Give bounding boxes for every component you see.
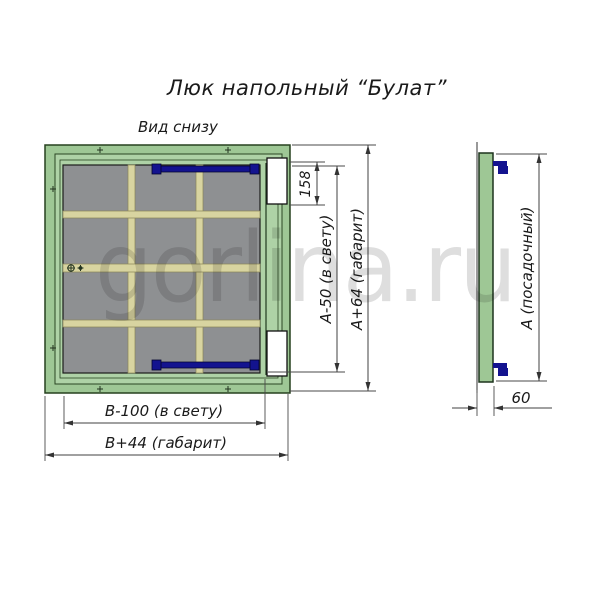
hinge-bottom-left-bracket	[152, 360, 161, 370]
hinge-bottom-bar	[158, 362, 253, 368]
dim-seat-height: А (посадочный)	[518, 207, 536, 331]
floor-hatch-drawing-page: Люк напольный “Булат” Вид снизу	[0, 0, 600, 600]
side-hinge-bottom-foot	[498, 368, 508, 376]
dim-width-clear: В-100 (в свету)	[105, 402, 223, 420]
side-hinge-top-bar	[493, 161, 507, 166]
dim-profile-depth: 60	[511, 389, 530, 407]
hinge-top-bar	[158, 166, 253, 172]
side-hinge-top-foot	[498, 166, 508, 174]
side-hinge-bottom	[493, 363, 508, 376]
watermark: gorlina.ru	[95, 212, 515, 324]
side-hinge-top	[493, 161, 508, 174]
page-title: Люк напольный “Булат”	[166, 76, 448, 100]
hinge-top-right-bracket	[250, 164, 259, 174]
dim-hinge-offset: 158	[298, 171, 314, 198]
dim-width-overall: В+44 (габарит)	[105, 434, 227, 452]
drawing-canvas: Люк напольный “Булат” Вид снизу	[0, 0, 600, 600]
hinge-cutout-top	[267, 158, 287, 204]
hinge-bottom-right-bracket	[250, 360, 259, 370]
hinge-top-left-bracket	[152, 164, 161, 174]
side-hinge-bottom-bar	[493, 363, 507, 368]
view-label: Вид снизу	[138, 118, 219, 136]
hinge-cutout-bottom	[267, 331, 287, 376]
